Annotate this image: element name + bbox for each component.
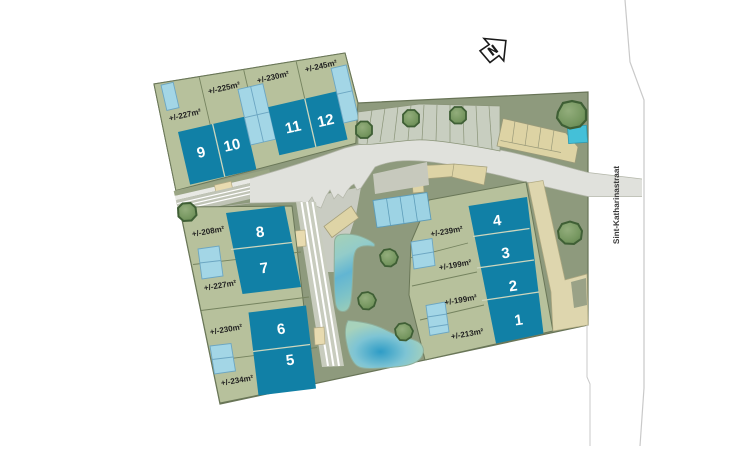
svg-text:Sint-Katharinastraat: Sint-Katharinastraat bbox=[612, 166, 621, 245]
